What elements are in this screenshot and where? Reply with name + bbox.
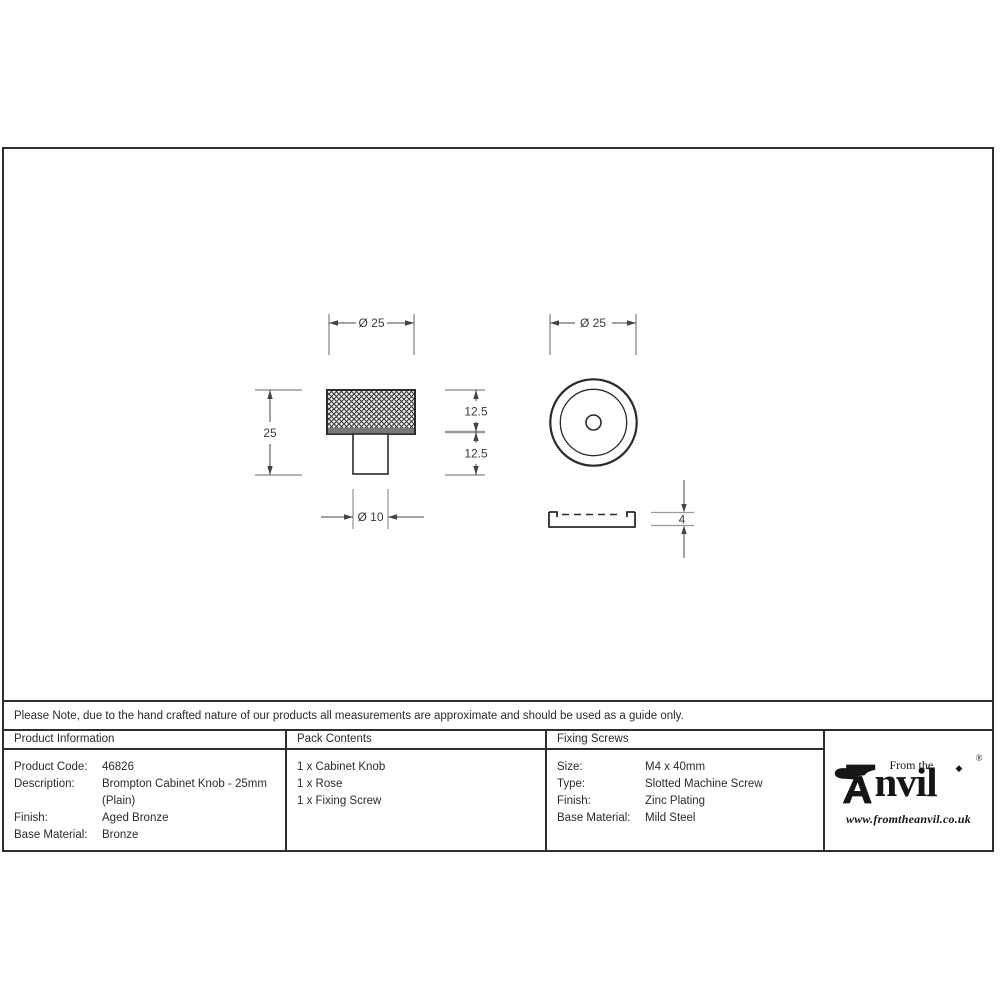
product-information-body: Product Code: 46826 Description: Brompto…	[4, 750, 285, 850]
logo-website: www.fromtheanvil.co.uk	[833, 812, 985, 827]
brand-logo-cell: From the ◆ nvil ® www.fromtheanvil.co.uk	[825, 731, 992, 850]
rose-outer-circle	[550, 379, 636, 465]
pack-contents-column: Pack Contents 1 x Cabinet Knob 1 x Rose …	[287, 731, 547, 850]
row-value: Bronze	[102, 827, 270, 844]
row-label: Product Code:	[14, 759, 102, 776]
top-view-diameter-label: Ø 25	[580, 316, 606, 330]
pack-contents-header: Pack Contents	[287, 731, 545, 750]
row-label: Finish:	[557, 793, 645, 810]
spec-table: Product Information Product Code: 46826 …	[4, 731, 992, 850]
row-label: Base Material:	[557, 810, 645, 827]
fixing-screws-body: Size: M4 x 40mm Type: Slotted Machine Sc…	[547, 750, 823, 850]
list-item: 1 x Rose	[297, 776, 537, 793]
table-row: Base Material: Mild Steel	[557, 810, 815, 827]
spec-sheet: Ø 25 25	[2, 147, 994, 852]
table-row: Base Material: Bronze	[14, 827, 277, 844]
row-value: 46826	[102, 759, 270, 776]
logo-brand-text: nvil	[875, 763, 937, 801]
product-information-column: Product Information Product Code: 46826 …	[4, 731, 287, 850]
row-label: Size:	[557, 759, 645, 776]
row-value: Slotted Machine Screw	[645, 776, 813, 793]
list-item: 1 x Fixing Screw	[297, 793, 537, 810]
pack-contents-body: 1 x Cabinet Knob 1 x Rose 1 x Fixing Scr…	[287, 750, 545, 850]
table-row: Size: M4 x 40mm	[557, 759, 815, 776]
measurement-note-row: Please Note, due to the hand crafted nat…	[4, 700, 992, 731]
rose-center-hole	[586, 415, 601, 430]
top-view: Ø 25	[550, 314, 637, 466]
table-row: Finish: Zinc Plating	[557, 793, 815, 810]
row-value: Zinc Plating	[645, 793, 813, 810]
from-the-anvil-logo: From the ◆ nvil ® www.fromtheanvil.co.uk	[833, 755, 985, 827]
knob-stem	[353, 434, 388, 474]
registered-trademark-icon: ®	[976, 753, 983, 763]
table-row: Finish: Aged Bronze	[14, 810, 277, 827]
technical-drawing: Ø 25 25	[4, 149, 992, 700]
front-head-diameter-label: Ø 25	[358, 316, 384, 330]
row-label: Type:	[557, 776, 645, 793]
row-value: Aged Bronze	[102, 810, 270, 827]
fixing-screws-header: Fixing Screws	[547, 731, 823, 750]
front-lower-height-label: 12.5	[464, 447, 488, 461]
product-information-header: Product Information	[4, 731, 285, 750]
front-upper-height-label: 12.5	[464, 405, 488, 419]
front-stem-diameter-label: Ø 10	[357, 510, 383, 524]
row-value: Brompton Cabinet Knob - 25mm (Plain)	[102, 776, 270, 810]
table-row: Product Code: 46826	[14, 759, 277, 776]
knob-head-base-band	[328, 428, 414, 434]
rose-profile-view: 4	[549, 480, 694, 558]
anvil-icon	[833, 761, 877, 807]
rose-thickness-label: 4	[679, 513, 686, 527]
row-label: Description:	[14, 776, 102, 810]
row-value: M4 x 40mm	[645, 759, 813, 776]
measurement-note-text: Please Note, due to the hand crafted nat…	[14, 710, 684, 722]
diamond-icon: ◆	[956, 763, 963, 774]
table-row: Type: Slotted Machine Screw	[557, 776, 815, 793]
fixing-screws-column: Fixing Screws Size: M4 x 40mm Type: Slot…	[547, 731, 825, 850]
knob-head	[327, 390, 415, 434]
row-label: Finish:	[14, 810, 102, 827]
technical-drawing-area: Ø 25 25	[4, 149, 992, 700]
rose-inner-circle	[560, 389, 626, 455]
table-row: Description: Brompton Cabinet Knob - 25m…	[14, 776, 277, 810]
front-total-height-label: 25	[263, 426, 277, 440]
row-label: Base Material:	[14, 827, 102, 844]
front-view: Ø 25 25	[255, 314, 488, 529]
row-value: Mild Steel	[645, 810, 813, 827]
list-item: 1 x Cabinet Knob	[297, 759, 537, 776]
